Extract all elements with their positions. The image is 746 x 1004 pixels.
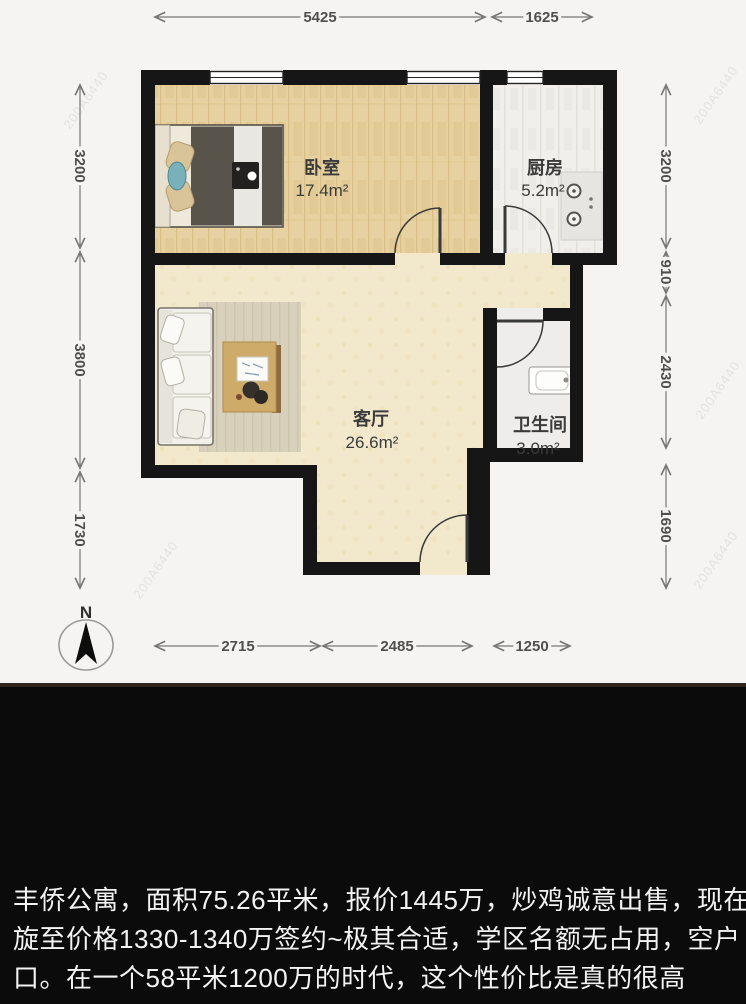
dimension-label: 910 [657, 259, 674, 284]
sink [529, 367, 574, 394]
dimension-label: 1250 [515, 638, 548, 655]
window [407, 72, 480, 84]
coffee-table [223, 342, 281, 413]
room-label-bathroom: 卫生间 [513, 414, 567, 435]
floorplan-svg: 200A6440 200A6440 200A6440 200A6440 200A… [0, 0, 746, 683]
room-label-living: 客厅 [353, 408, 389, 429]
room-label-bedroom: 卧室 [304, 157, 340, 178]
caption-section: 丰侨公寓，面积75.26平米，报价1445万，炒鸡诚意出售，现在斡 旋至价格13… [0, 683, 746, 1004]
threshold [505, 253, 552, 265]
room-area-living: 26.6m² [346, 433, 399, 452]
window [210, 72, 283, 84]
dimension-label: 5425 [303, 9, 336, 26]
dimension-label: 2715 [221, 638, 254, 655]
dimension-label: 2430 [657, 355, 674, 388]
dimension-label: 2485 [380, 638, 413, 655]
stove [561, 172, 602, 240]
dimension-label: 1730 [71, 513, 88, 546]
dimension-label: 3200 [71, 149, 88, 182]
caption-line: 口。在一个58平米1200万的时代，这个性价比是真的很高 [13, 959, 733, 998]
room-area-bedroom: 17.4m² [296, 181, 349, 200]
dimension-label: 1625 [525, 9, 558, 26]
threshold [420, 562, 467, 575]
dimension-label: 3800 [71, 343, 88, 376]
floorplan-section: 200A6440 200A6440 200A6440 200A6440 200A… [0, 0, 746, 683]
compass-north-label: N [80, 603, 92, 622]
round-cushion [168, 162, 186, 190]
dimension-label: 1690 [657, 509, 674, 542]
sofa [158, 308, 213, 445]
dimension-label: 3200 [657, 149, 674, 182]
room-area-kitchen: 5.2m² [521, 181, 565, 200]
bed [155, 125, 283, 227]
caption-line: 丰侨公寓，面积75.26平米，报价1445万，炒鸡诚意出售，现在斡 [13, 881, 733, 920]
window [507, 72, 543, 84]
threshold [395, 253, 440, 265]
threshold [497, 308, 543, 321]
room-label-kitchen: 厨房 [527, 157, 563, 178]
caption-line: 旋至价格1330-1340万签约~极其合适，学区名额无占用，空户 [13, 920, 733, 959]
room-area-bathroom: 3.0m² [516, 439, 560, 458]
